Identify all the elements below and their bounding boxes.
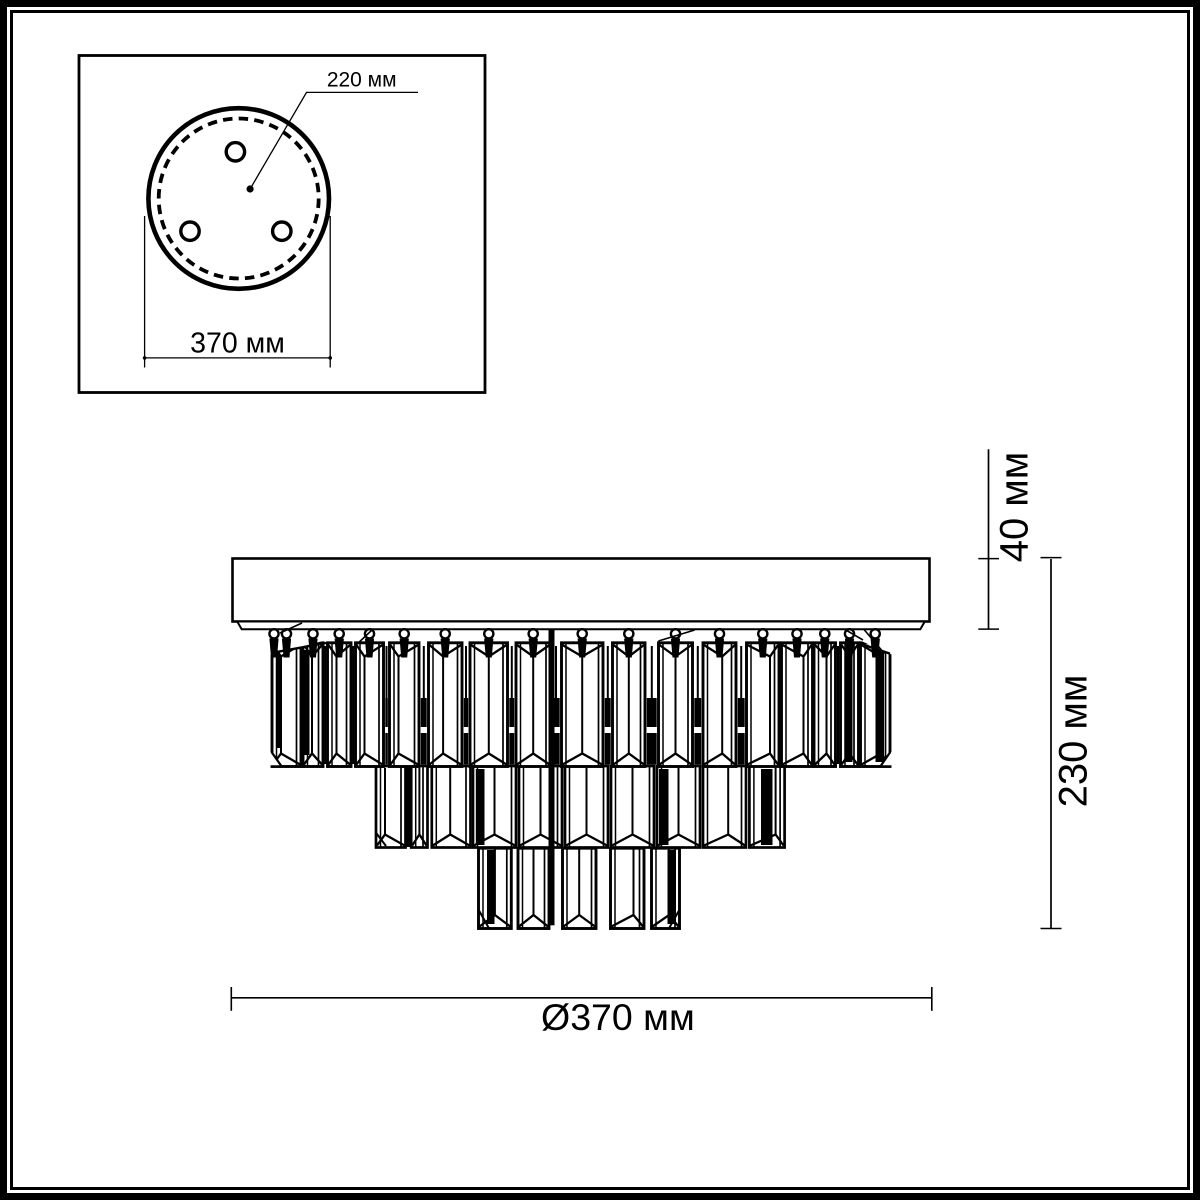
svg-text:230 мм: 230 мм	[1052, 675, 1096, 808]
svg-text:220 мм: 220 мм	[327, 69, 397, 92]
svg-text:40 мм: 40 мм	[993, 452, 1037, 563]
svg-text:Ø370 мм: Ø370 мм	[541, 996, 695, 1038]
svg-text:370 мм: 370 мм	[190, 328, 285, 360]
